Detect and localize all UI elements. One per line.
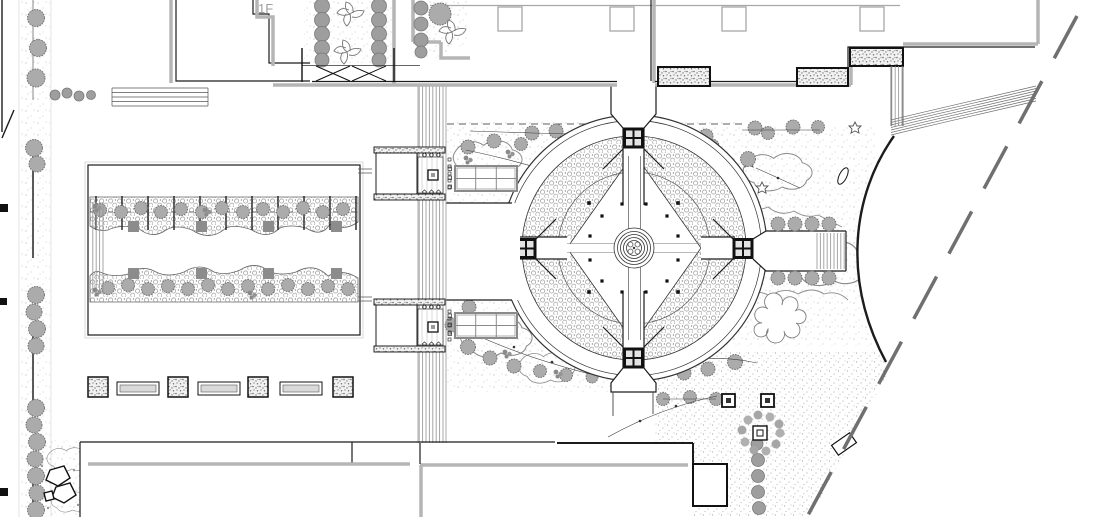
floor-label: 1F: [258, 1, 273, 16]
west-end-steps: [90, 202, 104, 294]
west-plaza: [446, 203, 520, 300]
site-plan-drawing: 1F: [0, 0, 1095, 517]
planter-square: [248, 377, 268, 397]
survey-tick: [0, 204, 8, 212]
planter-square: [333, 377, 353, 397]
survey-tick: [0, 488, 8, 496]
planter-square: [168, 377, 188, 397]
bench: [198, 382, 240, 395]
survey-tick: [0, 298, 7, 305]
planter-box: [658, 67, 710, 86]
node-south: [623, 348, 644, 369]
bench: [280, 382, 322, 395]
node-east: [733, 238, 754, 259]
boardwalk-stair-strip: [418, 85, 446, 443]
landscape-site-plan: 1F: [0, 0, 1095, 517]
node-north: [623, 128, 644, 149]
trellis-south: [455, 313, 517, 338]
west-pergola-garden: [85, 162, 372, 338]
bench: [117, 382, 159, 395]
east-gate-steps: [816, 233, 846, 269]
central-fountain: [614, 228, 654, 268]
planter-box: [797, 68, 848, 86]
trellis-north: [455, 166, 517, 191]
planter-box: [850, 48, 903, 66]
lower-buildings: [80, 442, 727, 517]
building-annex: [693, 464, 727, 506]
planter-square: [88, 377, 108, 397]
northeast-stair: [891, 66, 903, 126]
